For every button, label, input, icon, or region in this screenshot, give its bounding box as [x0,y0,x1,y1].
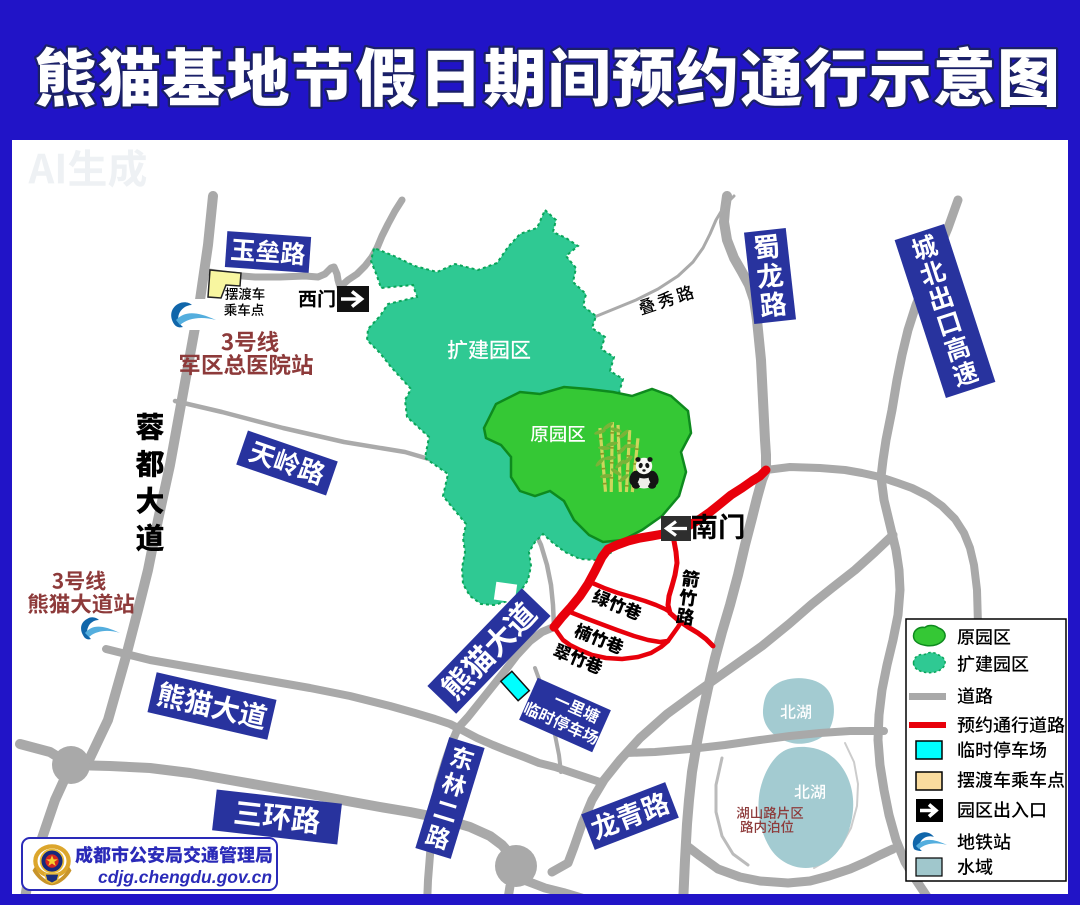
svg-text:cdjg.chengdu.gov.cn: cdjg.chengdu.gov.cn [98,867,272,887]
